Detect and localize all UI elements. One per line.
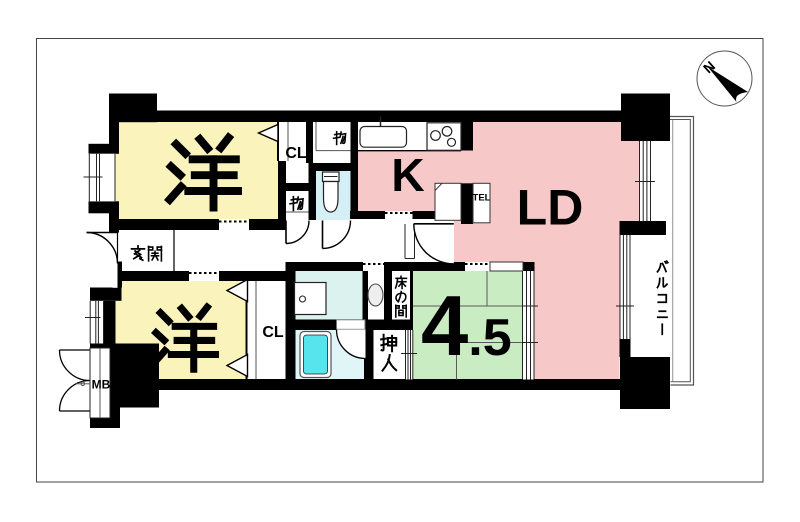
svg-text:K: K <box>391 149 424 201</box>
svg-text:CL: CL <box>262 324 284 341</box>
svg-text:LD: LD <box>517 180 584 236</box>
svg-text:TEL: TEL <box>473 193 491 204</box>
svg-text:MB: MB <box>92 378 111 392</box>
svg-text:CL: CL <box>285 145 307 162</box>
